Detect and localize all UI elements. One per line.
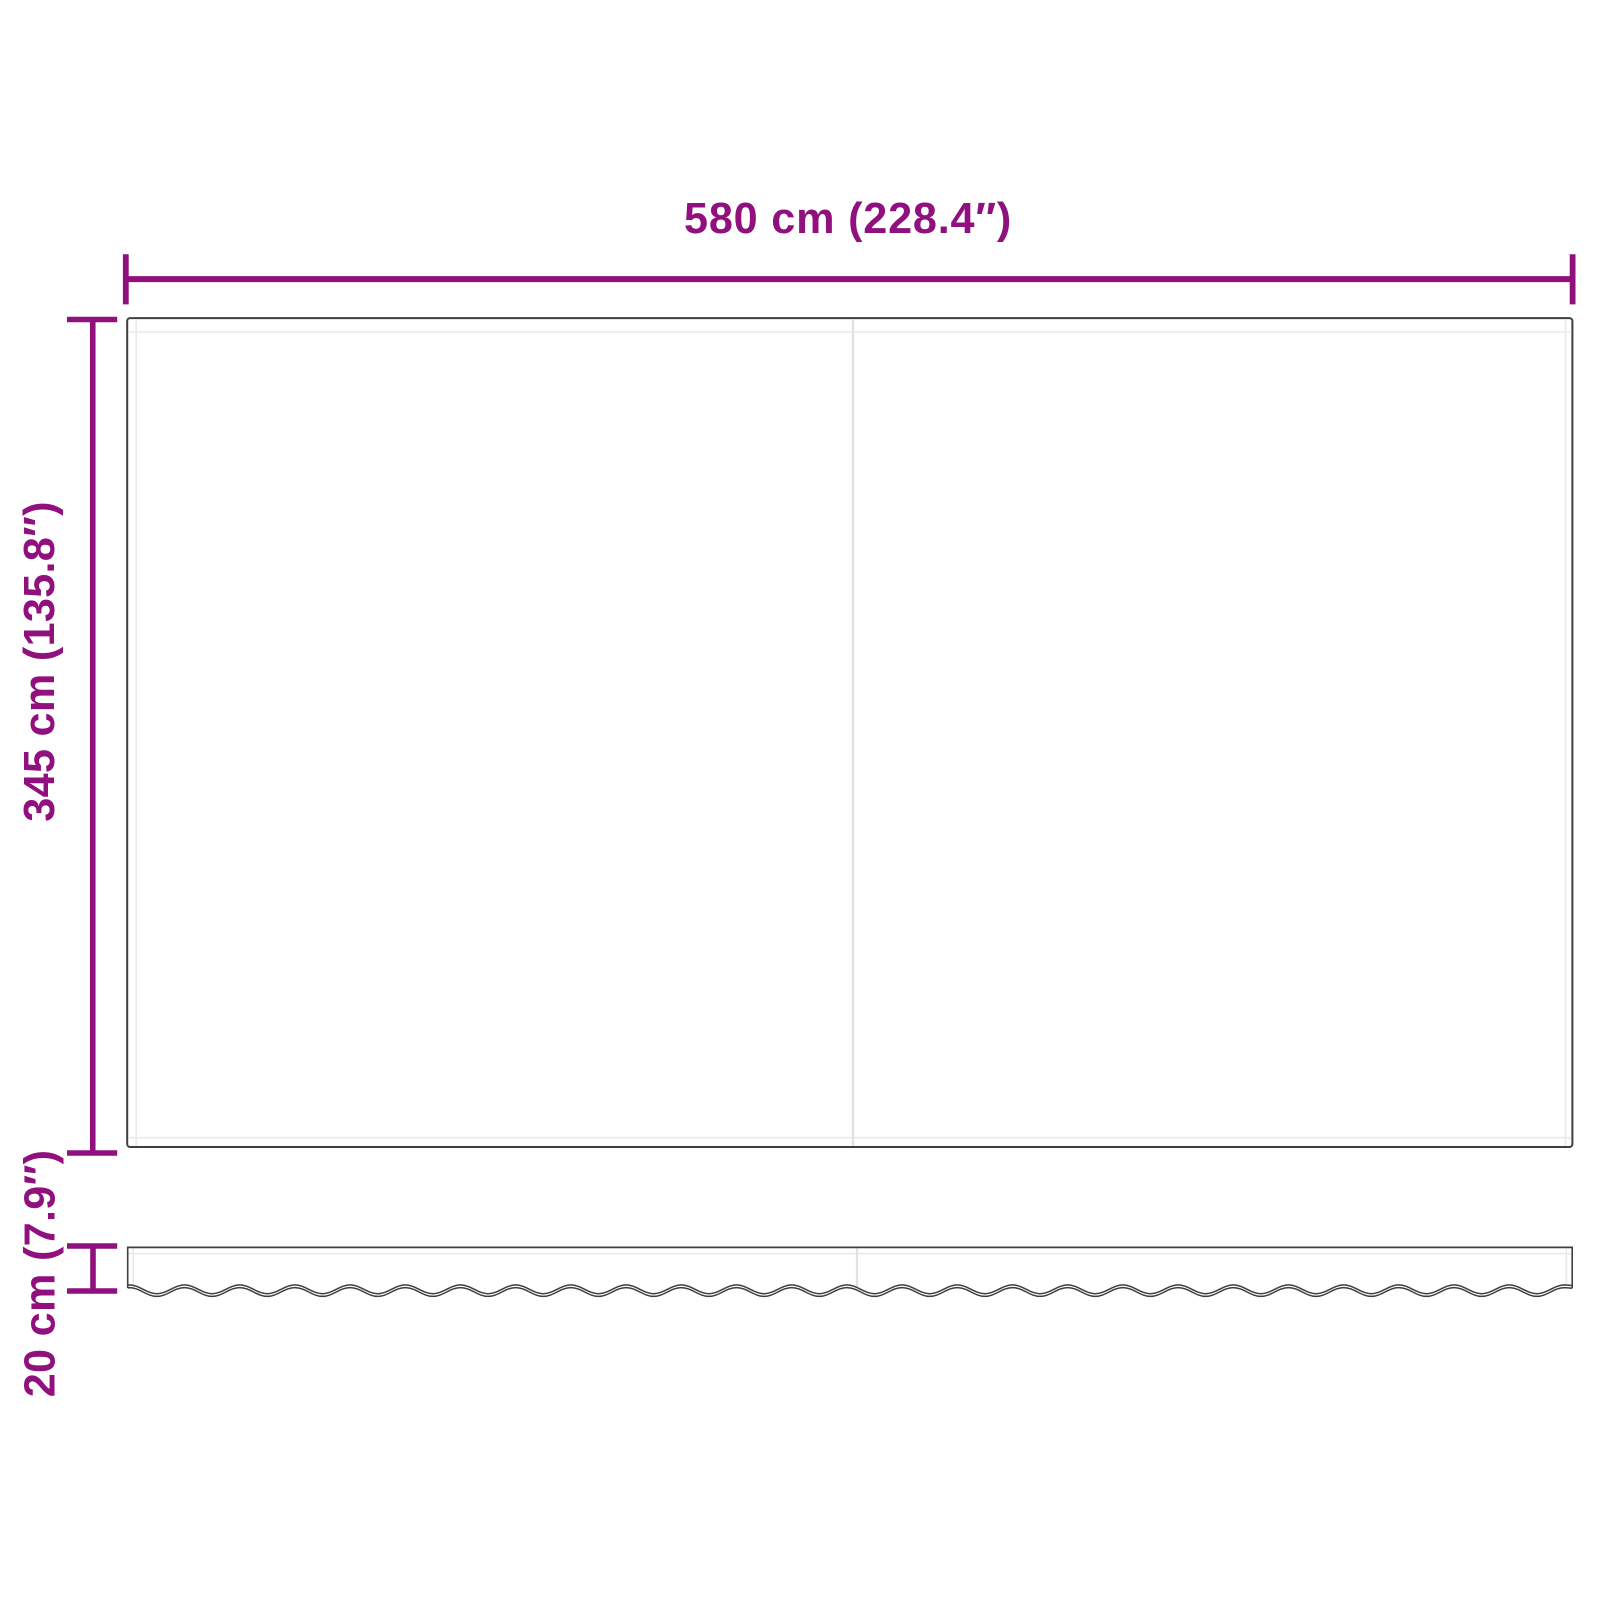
svg-text:580 cm (228.4″): 580 cm (228.4″) [684, 195, 1012, 243]
svg-text:20 cm (7.9″): 20 cm (7.9″) [17, 1150, 65, 1398]
svg-text:345 cm (135.8″): 345 cm (135.8″) [16, 501, 64, 822]
